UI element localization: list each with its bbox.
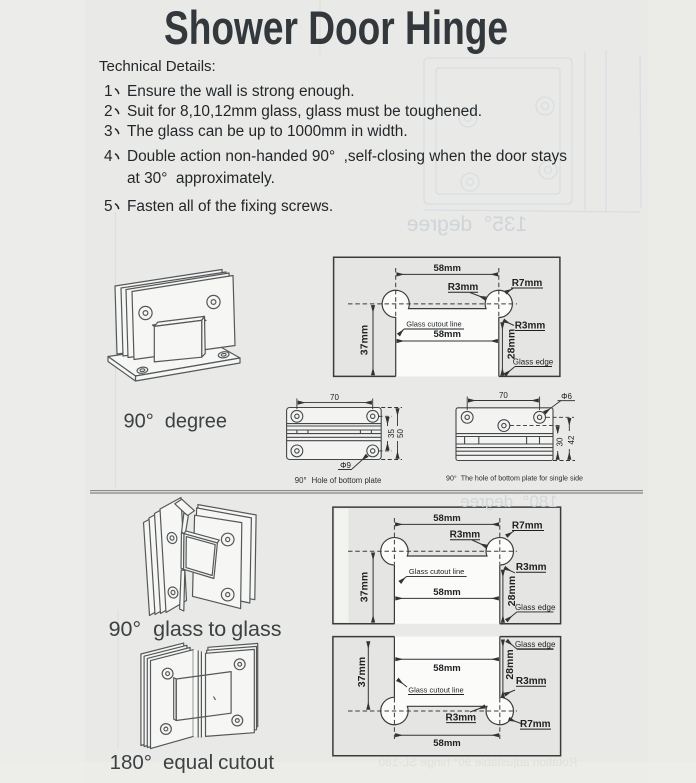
svg-text:180°equalcutout: 180°equalcutout xyxy=(110,751,275,774)
svg-text:3: 3 xyxy=(104,123,113,140)
svg-text:58mm: 58mm xyxy=(433,513,460,524)
svg-text:58mm: 58mm xyxy=(433,329,460,340)
svg-text:37mm: 37mm xyxy=(359,572,371,602)
svg-text:R3mm: R3mm xyxy=(446,712,477,723)
svg-text:5: 5 xyxy=(104,198,113,215)
svg-text:90°The hole of bottom plate fo: 90°The hole of bottom plate for single s… xyxy=(446,475,583,483)
svg-text:R7mm: R7mm xyxy=(512,520,543,531)
svg-text:R3mm: R3mm xyxy=(516,676,547,687)
svg-text:Glass edge: Glass edge xyxy=(515,640,556,649)
svg-text:37mm: 37mm xyxy=(359,325,371,355)
svg-text:Glass edge: Glass edge xyxy=(515,603,556,612)
svg-text:Φ6: Φ6 xyxy=(561,392,572,401)
svg-text:28mm: 28mm xyxy=(504,649,516,679)
svg-text:58mm: 58mm xyxy=(433,263,460,274)
svg-text:R3mm: R3mm xyxy=(448,282,479,293)
svg-text:42: 42 xyxy=(567,435,576,444)
svg-text:R3mm: R3mm xyxy=(515,321,546,332)
svg-text:1: 1 xyxy=(104,83,113,100)
svg-text:Fasten all of the fixing screw: Fasten all of the fixing screws. xyxy=(127,198,333,215)
svg-text:Suit for 8,10,12mm glass, glas: Suit for 8,10,12mm glass, glass must be … xyxy=(127,103,482,120)
svg-text:90°glasstoglass: 90°glasstoglass xyxy=(109,617,282,641)
svg-text:R7mm: R7mm xyxy=(520,719,551,730)
svg-text:R7mm: R7mm xyxy=(512,278,543,289)
svg-text:Shower Door Hinge: Shower Door Hinge xyxy=(164,1,508,54)
svg-text:58mm: 58mm xyxy=(433,587,460,598)
svg-text:70: 70 xyxy=(499,391,508,400)
svg-text:The glass can be up to 1000mm: The glass can be up to 1000mm in width. xyxy=(127,123,408,140)
svg-text:Glass cutout line: Glass cutout line xyxy=(408,685,463,694)
svg-text:30: 30 xyxy=(555,437,564,446)
svg-text:R3mm: R3mm xyxy=(450,530,481,541)
svg-text:Ensure the wall is strong enou: Ensure the wall is strong enough. xyxy=(127,83,355,100)
svg-text:Glass cutout line: Glass cutout line xyxy=(406,320,461,329)
svg-text:2: 2 xyxy=(104,103,113,120)
svg-text:50: 50 xyxy=(396,429,405,438)
svg-text:Technical Details:: Technical Details: xyxy=(99,58,216,75)
svg-text:37mm: 37mm xyxy=(356,657,368,687)
svg-text:58mm: 58mm xyxy=(433,663,460,674)
svg-text:R3mm: R3mm xyxy=(516,562,547,573)
svg-text:90°degree: 90°degree xyxy=(124,411,228,433)
svg-text:4: 4 xyxy=(104,148,113,165)
svg-text:Glass cutout line: Glass cutout line xyxy=(409,567,464,576)
svg-text:70: 70 xyxy=(330,393,339,402)
svg-text:Φ9: Φ9 xyxy=(340,461,351,470)
svg-text:Double action non-handed 90°: Double action non-handed 90° ,self-closi… xyxy=(127,148,567,165)
svg-text:35: 35 xyxy=(387,429,396,438)
svg-text:58mm: 58mm xyxy=(433,738,460,749)
svg-text:at 30° approximately.: at 30° approximately. xyxy=(127,170,275,187)
svg-text:135° degree: 135° degree xyxy=(407,213,528,236)
svg-text:28mm: 28mm xyxy=(506,329,518,359)
svg-text:Rotation adjustable 90° hing: Rotation adjustable 90° hinge SL-180 xyxy=(378,755,577,769)
svg-text:28mm: 28mm xyxy=(506,576,518,606)
svg-text:Glass edge: Glass edge xyxy=(513,358,554,367)
svg-text:180° degree: 180° degree xyxy=(460,492,558,511)
